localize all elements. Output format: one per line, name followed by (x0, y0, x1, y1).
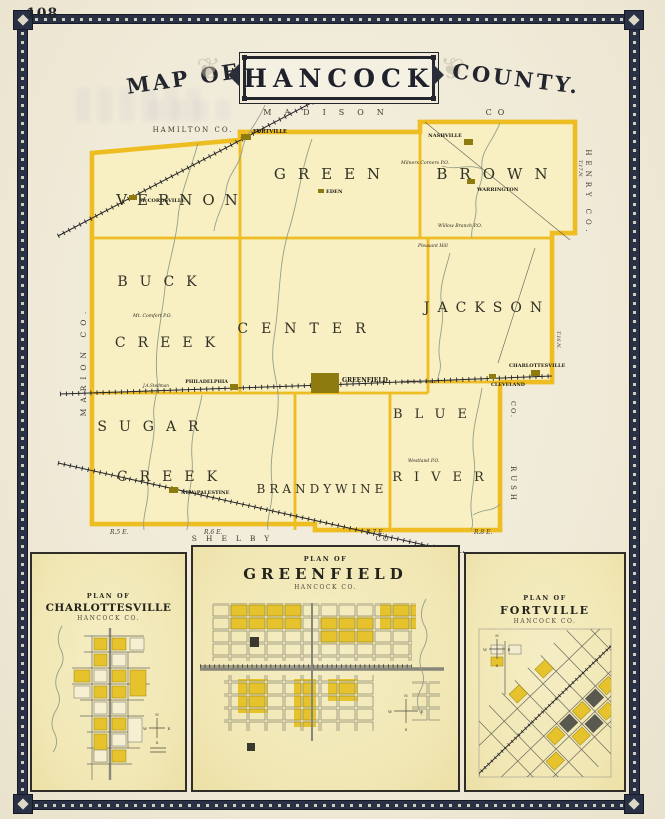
inset-charlottesville: PLAN OF CHARLOTTESVILLE HANCOCK CO. (30, 552, 187, 792)
town-label: CHARLOTTESVILLE (509, 363, 566, 369)
greenfield-marker (311, 373, 339, 393)
title-prefix: MAP OF (125, 58, 241, 99)
compass-icon (489, 639, 505, 659)
border-county: MADISON (263, 108, 397, 117)
frame-top (17, 14, 640, 24)
flourish-ornament (196, 52, 221, 87)
township-name: BUCK (117, 274, 208, 290)
title-cartouche: HANCOCK (243, 56, 435, 100)
inset-heading: PLAN OF (32, 592, 185, 600)
fortville-marker (241, 134, 251, 140)
township-name: BROWN (436, 165, 559, 183)
range-label: R.8 E. (473, 529, 493, 536)
township-row-label: T.17.N. (577, 160, 583, 178)
nashville-marker (464, 139, 473, 145)
town-label: J.A.Stedman (142, 383, 169, 388)
township-name: GREEN (274, 165, 392, 183)
compass-w: W (483, 647, 488, 652)
township-name: JACKSON (422, 300, 550, 316)
frame-corner-ornament (624, 794, 644, 814)
new-palestine-marker (169, 487, 178, 493)
township-name: BRANDYWINE (257, 482, 388, 496)
courthouse-block (250, 637, 259, 647)
atlas-page: 108 MAP OF HANCOCK COUNTY. (0, 0, 665, 819)
church-block (247, 743, 255, 751)
compass-w: W (143, 726, 148, 731)
town-label: GREENFIELD (342, 377, 388, 384)
frame-right (629, 14, 640, 810)
compass-n: N (404, 693, 408, 698)
range-label: R.5 E. (109, 529, 129, 536)
compass-s: S (156, 740, 159, 745)
compass-e: E (168, 726, 171, 731)
inset-title: FORTVILLE (466, 604, 624, 617)
page-number: 108 (26, 6, 58, 22)
inset-greenfield: PLAN OF GREENFIELD HANCOCK CO. (191, 545, 460, 792)
compass-e: E (508, 647, 511, 652)
county-map: FORTVILLE McCORDSVILLE EDEN NASHVILLE Mi… (30, 103, 630, 553)
border-county: RUSH (509, 466, 517, 504)
town-label: Mt. Comfort P.O. (132, 313, 172, 319)
compass-n: N (155, 712, 159, 717)
range-label: R.7 E. (365, 529, 385, 536)
town-label: NASHVILLE (428, 133, 462, 139)
eden-marker (318, 189, 324, 193)
town-label: Pleasant Hill (417, 243, 448, 249)
title-suffix: COUNTY. (451, 58, 582, 99)
county-name: HANCOCK (246, 59, 432, 97)
town-label: CLEVELAND (491, 382, 525, 388)
frame-left (17, 14, 28, 810)
township-name: SUGAR (97, 419, 210, 435)
philadelphia-marker (230, 384, 238, 390)
inset-fortville: PLAN OF FORTVILLE HANCOCK CO. (464, 552, 626, 792)
compass-s: S (496, 663, 499, 668)
frame-corner-ornament (13, 794, 33, 814)
inset-title: GREENFIELD (193, 565, 458, 583)
border-county: HENRY CO. (584, 149, 592, 236)
inset-heading: PLAN OF (193, 555, 458, 563)
cleveland-marker (489, 374, 496, 379)
town-label: Willow Branch P.O. (438, 223, 483, 229)
inset-title: CHARLOTTESVILLE (32, 602, 185, 614)
compass-s: S (405, 727, 408, 732)
street-grid (72, 628, 150, 780)
charlottesville-plan: N S W E (32, 622, 189, 784)
border-county: CO (486, 108, 511, 117)
charlottesville-marker (531, 370, 540, 376)
township-row-label: T.16.N. (555, 331, 561, 349)
town-label: WARRINGTON (476, 187, 519, 193)
frame-bottom (17, 800, 640, 810)
border-county: HAMILTON CO. (153, 126, 234, 134)
frame-corner-ornament (624, 10, 644, 30)
township-name: BLUE (393, 407, 479, 422)
township-name: CREEK (117, 469, 229, 485)
inset-subtitle: HANCOCK CO. (32, 615, 185, 622)
town-label: NEW PALESTINE (181, 490, 230, 496)
fortville-plan: N S W E (467, 625, 623, 783)
compass-n: N (495, 633, 499, 638)
greenfield-plan: N S W E (194, 591, 457, 773)
cartouche-bracket-left (228, 63, 240, 87)
compass-icon (149, 718, 166, 752)
town-label: Westland P.O. (408, 458, 440, 464)
compass-e: E (421, 709, 424, 714)
range-label: R.6 E. (203, 529, 223, 536)
compass-w: W (388, 709, 393, 714)
township-name: RIVER (392, 470, 496, 485)
inset-subtitle: HANCOCK CO. (466, 618, 624, 625)
border-county: MARION CO. (79, 306, 88, 417)
town-label: PHILADELPHIA (185, 379, 228, 385)
township-name: CENTER (237, 321, 378, 337)
township-name: CREEK (115, 335, 227, 351)
road-label: NATIONAL ROAD (401, 379, 437, 384)
town-label: EDEN (326, 189, 343, 195)
township-name: VERNON (115, 191, 248, 209)
inset-subtitle: HANCOCK CO. (193, 584, 458, 591)
border-county: CO. (376, 535, 395, 543)
creek (52, 626, 63, 752)
border-county: CO. (509, 401, 517, 419)
town-label: FORTVILLE (253, 129, 287, 135)
inset-heading: PLAN OF (466, 594, 624, 602)
